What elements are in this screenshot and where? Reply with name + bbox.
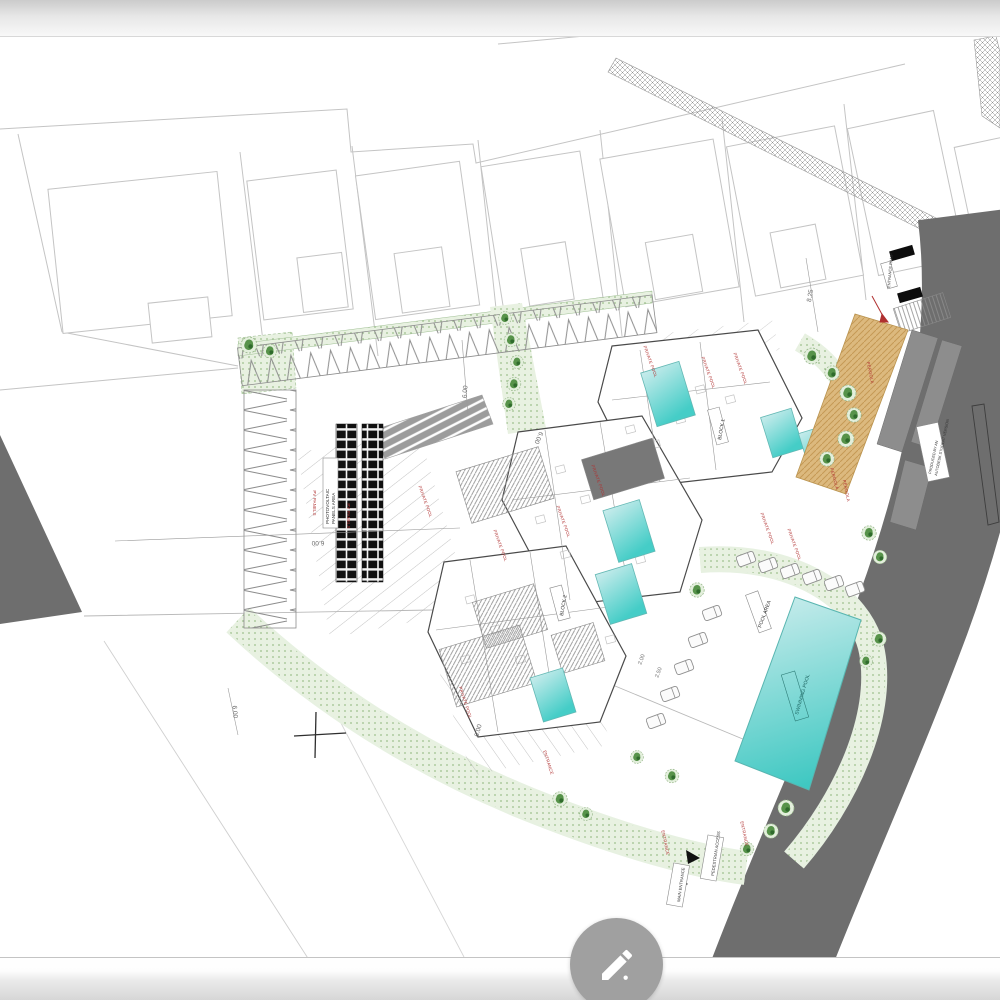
edit-button[interactable] (570, 918, 663, 1000)
dim-6m: 6.00 (230, 705, 238, 719)
svg-text:PV PANELS: PV PANELS (312, 490, 317, 515)
dim-6m: 6.00 (311, 539, 324, 546)
site-plan-drawing: PHOTOVOLTAIC PANELS AREA BLOCK 1 BLOCK 2… (0, 0, 1000, 1000)
label-photovoltaic: PHOTOVOLTAIC (325, 488, 330, 524)
carport-strip-west (244, 390, 296, 628)
dim-6m: 6.00 (461, 385, 469, 399)
svg-text:PV PANELS: PV PANELS (346, 503, 351, 528)
pencil-icon (597, 945, 637, 985)
plan-card: PHOTOVOLTAIC PANELS AREA BLOCK 1 BLOCK 2… (0, 0, 1000, 1000)
footer-bar (0, 957, 1000, 1000)
header-bar (0, 0, 1000, 37)
svg-text:PANELS AREA: PANELS AREA (331, 492, 336, 524)
